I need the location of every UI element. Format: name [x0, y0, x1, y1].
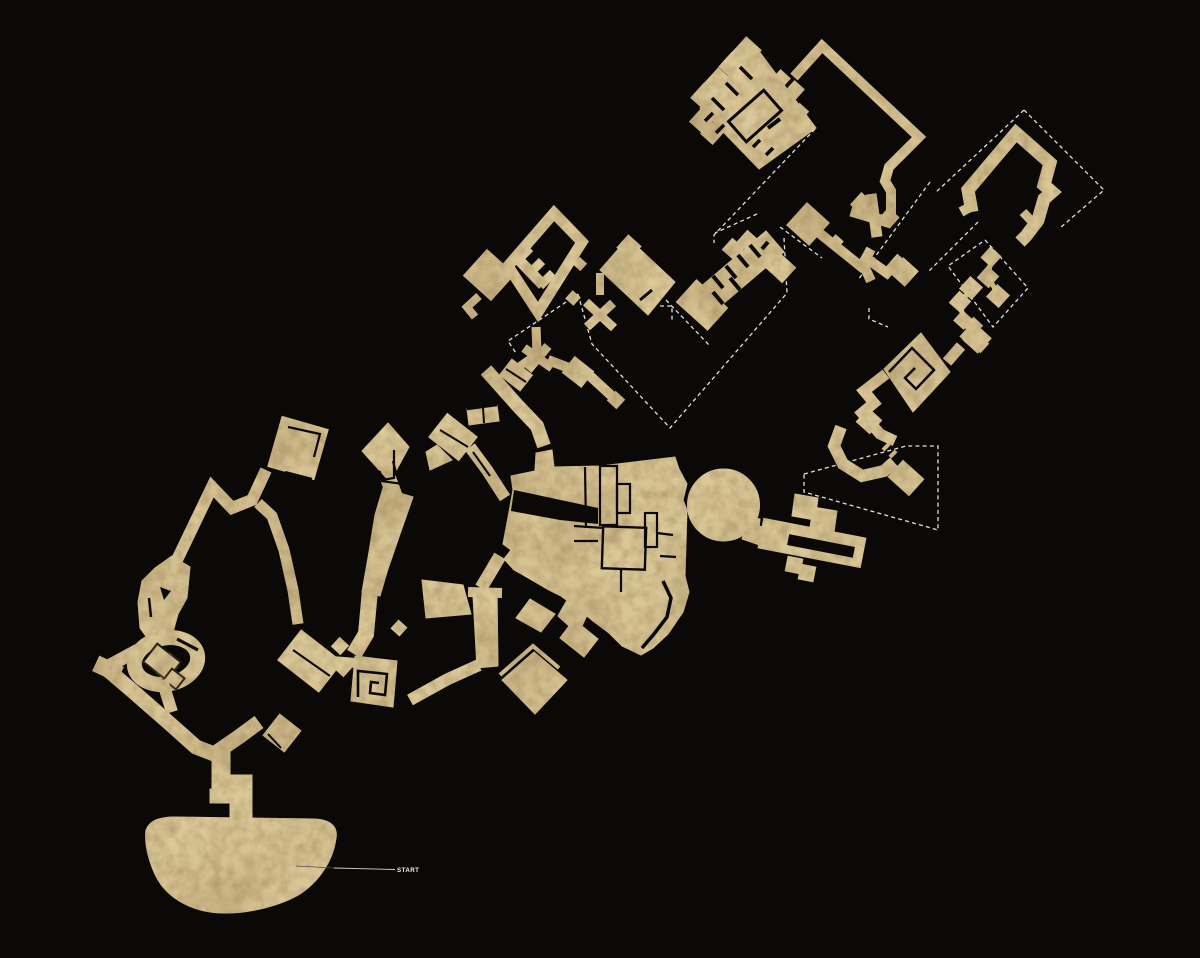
svg-text:START: START: [397, 867, 419, 874]
